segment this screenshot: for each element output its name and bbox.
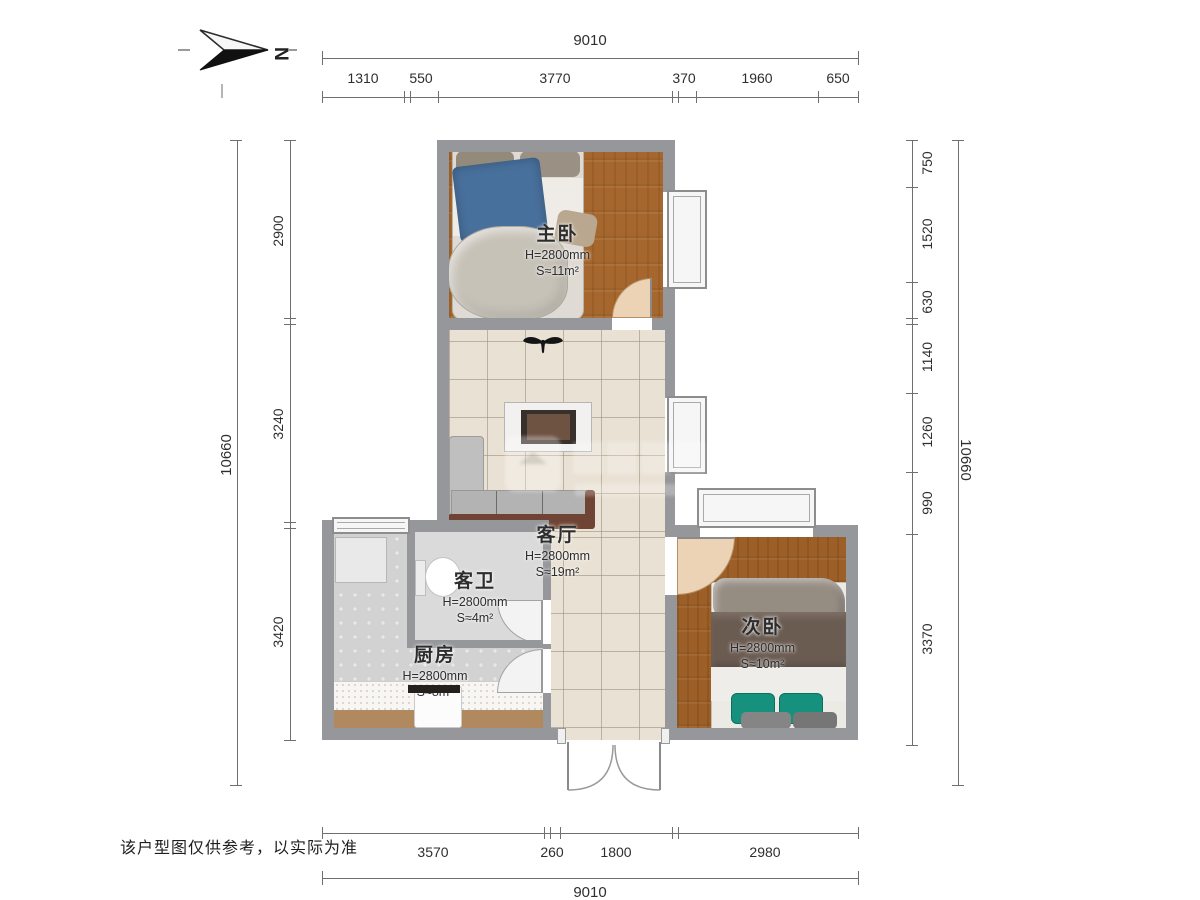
dim-tick	[438, 91, 439, 103]
room-height: H=2800mm	[500, 549, 615, 563]
dim-tick	[678, 91, 679, 103]
dim-right-seg: 1520	[919, 202, 935, 266]
room-area: S≈10m²	[705, 657, 820, 671]
dim-left-seg: 3420	[270, 600, 286, 664]
wall	[665, 595, 677, 740]
wall	[543, 693, 551, 740]
dim-tick	[284, 740, 296, 741]
dim-line	[322, 878, 858, 879]
dim-top-seg: 1310	[331, 70, 395, 86]
compass-north-arrow: N	[178, 24, 298, 80]
compass-label: N	[270, 47, 291, 61]
dim-tick	[544, 827, 545, 839]
room-area: S≈11m²	[500, 264, 615, 278]
dim-tick	[230, 785, 242, 786]
dim-tick	[952, 785, 964, 786]
dim-left-seg: 2900	[270, 199, 286, 263]
dim-top-seg: 1960	[725, 70, 789, 86]
wall	[665, 330, 675, 398]
dim-line	[237, 140, 238, 785]
dim-tick	[952, 140, 964, 141]
dim-tick	[404, 91, 405, 103]
dim-tick	[906, 282, 918, 283]
dim-tick	[906, 393, 918, 394]
room-area: S≈4m²	[419, 611, 531, 625]
dim-tick	[284, 318, 296, 319]
crop-tick	[221, 84, 223, 98]
dim-tick	[678, 827, 679, 839]
dim-tick	[906, 324, 918, 325]
dim-tick	[284, 528, 296, 529]
dim-top-seg: 550	[389, 70, 453, 86]
wall	[543, 644, 551, 649]
dim-tick	[672, 91, 673, 103]
wall	[846, 525, 858, 740]
dim-right-seg: 990	[919, 471, 935, 535]
entrance-double-door	[566, 742, 662, 794]
room-name: 主卧	[500, 219, 615, 246]
dim-right-total: 10660	[957, 424, 973, 496]
dim-tick	[696, 91, 697, 103]
dim-tick	[322, 51, 323, 65]
dim-left-seg: 3240	[270, 392, 286, 456]
dim-top-total: 9010	[558, 33, 622, 49]
dim-top-seg: 3770	[523, 70, 587, 86]
gray-pillow	[741, 712, 791, 729]
dim-tick	[906, 318, 918, 319]
wall	[652, 318, 675, 330]
dim-right-seg: 750	[919, 131, 935, 195]
dim-tick	[284, 140, 296, 141]
wall	[322, 728, 562, 740]
dim-right-seg: 1260	[919, 400, 935, 464]
room-label-secondary: 次卧 H=2800mm S≈10m²	[705, 612, 820, 671]
dim-top-seg: 370	[652, 70, 716, 86]
dim-line	[290, 140, 291, 740]
entrance-door-jamb	[557, 728, 566, 744]
wall	[322, 520, 334, 740]
dim-line	[912, 140, 913, 745]
wall	[437, 140, 449, 532]
dim-bottom-total: 9010	[558, 885, 622, 900]
dim-tick	[322, 91, 323, 103]
room-height: H=2800mm	[705, 641, 820, 655]
dim-tick	[322, 871, 323, 885]
wall	[665, 528, 677, 537]
entrance-door-jamb	[661, 728, 670, 744]
dim-tick	[906, 534, 918, 535]
dim-tick	[410, 91, 411, 103]
fridge	[335, 537, 387, 583]
room-height: H=2800mm	[379, 669, 491, 683]
dim-tick	[906, 745, 918, 746]
wall	[675, 728, 858, 740]
disclaimer-text: 该户型图仅供参考，以实际为准	[120, 834, 358, 858]
dim-tick	[858, 91, 859, 103]
wall	[407, 532, 415, 642]
room-height: H=2800mm	[500, 248, 615, 262]
dim-bottom-seg: 3570	[401, 844, 465, 860]
dim-tick	[550, 827, 551, 839]
floorplan-canvas: 主卧 H=2800mm S≈11m² 客厅 H=2800mm S≈19m² 客卫…	[0, 0, 1200, 900]
dim-line	[322, 833, 858, 834]
dim-tick	[672, 827, 673, 839]
dim-tick	[858, 51, 859, 65]
dim-bottom-seg: 260	[520, 844, 584, 860]
dim-tick	[858, 827, 859, 839]
dim-right-seg: 1140	[919, 325, 935, 389]
wall	[437, 318, 612, 330]
room-label-master: 主卧 H=2800mm S≈11m²	[500, 219, 615, 278]
dim-tick	[818, 91, 819, 103]
dim-tick	[906, 472, 918, 473]
dim-tick	[284, 324, 296, 325]
dim-top-seg: 650	[806, 70, 870, 86]
dim-line	[322, 97, 858, 98]
dim-tick	[906, 187, 918, 188]
dim-tick	[560, 827, 561, 839]
dim-tick	[906, 140, 918, 141]
watermark-logo	[505, 428, 715, 528]
dim-right-seg: 3370	[919, 607, 935, 671]
room-label-bathroom: 客卫 H=2800mm S≈4m²	[419, 566, 531, 625]
dim-bottom-seg: 2980	[733, 844, 797, 860]
dim-line	[322, 58, 858, 59]
master-bedroom-window	[667, 190, 707, 289]
dim-tick	[284, 522, 296, 523]
room-name: 次卧	[705, 612, 820, 639]
dim-bottom-seg: 1800	[584, 844, 648, 860]
kitchen-window	[332, 517, 410, 534]
wall	[437, 140, 675, 152]
room-height: H=2800mm	[419, 595, 531, 609]
room-name: 客卫	[419, 566, 531, 593]
ceiling-fan-icon	[522, 330, 564, 356]
dim-tick	[858, 871, 859, 885]
dim-left-total: 10660	[219, 419, 235, 491]
wall	[663, 140, 675, 192]
counter-edge-bar	[408, 685, 460, 693]
dim-tick	[230, 140, 242, 141]
room-name: 厨房	[379, 640, 491, 667]
gray-pillow	[793, 712, 837, 729]
